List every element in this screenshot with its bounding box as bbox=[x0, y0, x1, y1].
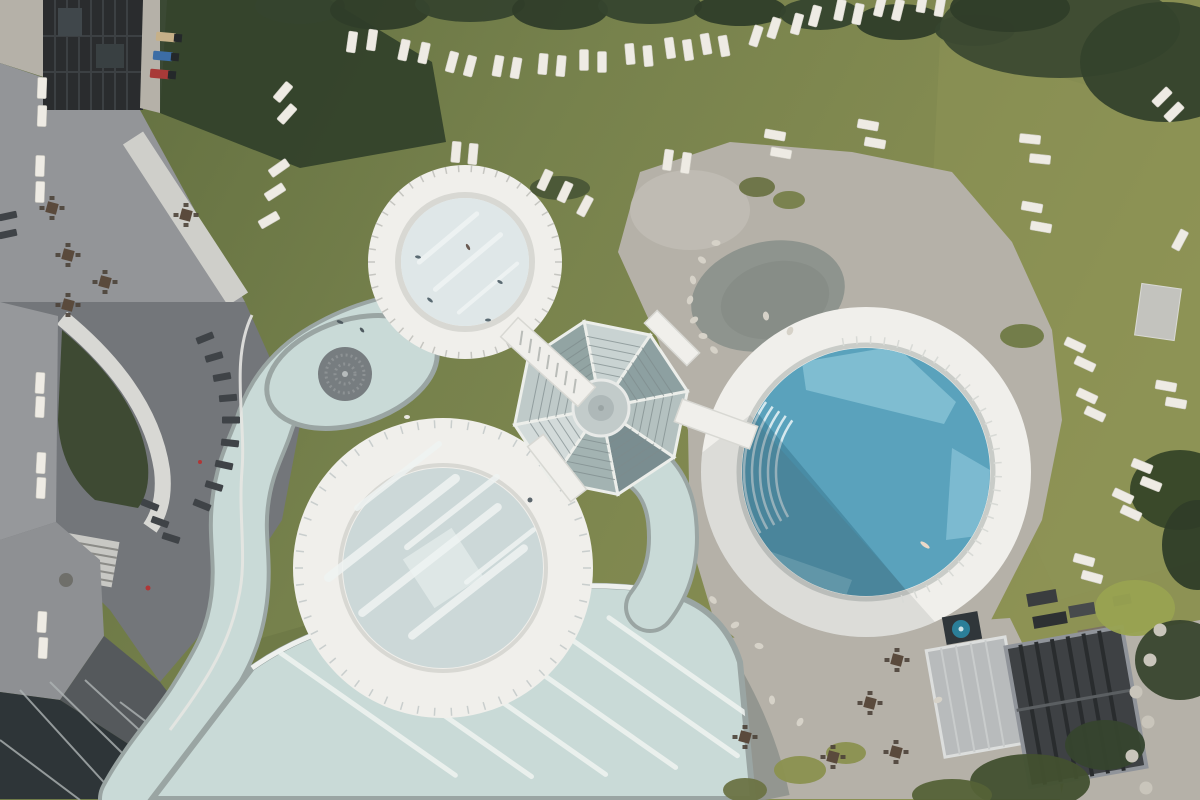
sun-lounger bbox=[451, 141, 462, 163]
sun-lounger bbox=[35, 372, 45, 393]
railing-tick bbox=[582, 551, 590, 552]
chair bbox=[184, 203, 189, 207]
chair bbox=[40, 206, 45, 210]
stepping-stone bbox=[1140, 782, 1153, 795]
chair bbox=[76, 303, 81, 307]
chair bbox=[895, 648, 900, 652]
stepping-stone bbox=[1130, 686, 1143, 699]
chair bbox=[56, 303, 61, 307]
chair bbox=[56, 253, 61, 257]
chair bbox=[894, 740, 899, 744]
bush bbox=[774, 756, 826, 784]
railing-tick bbox=[994, 463, 1002, 464]
bush bbox=[1065, 720, 1145, 770]
railing-tick bbox=[857, 336, 858, 344]
chair bbox=[50, 196, 55, 200]
stepping-stone bbox=[1144, 654, 1157, 667]
dark-lounger bbox=[222, 417, 240, 424]
spa-aerial-photo-svg bbox=[0, 0, 1200, 800]
lounger-footrest bbox=[174, 34, 183, 43]
railing-tick bbox=[296, 584, 304, 585]
stepping-stone bbox=[1154, 624, 1167, 637]
sun-lounger bbox=[468, 143, 479, 165]
sun-lounger bbox=[37, 77, 47, 98]
sun-lounger bbox=[35, 396, 45, 417]
person bbox=[485, 319, 491, 322]
person bbox=[146, 586, 151, 591]
chair bbox=[858, 701, 863, 705]
chair bbox=[184, 223, 189, 227]
colored-lounger bbox=[153, 51, 174, 62]
sun-lounger bbox=[643, 45, 654, 67]
gravel-highlight bbox=[630, 170, 750, 250]
chair bbox=[174, 213, 179, 217]
stepping-stone bbox=[1142, 716, 1155, 729]
sun-lounger bbox=[556, 55, 567, 77]
chair bbox=[194, 213, 199, 217]
railing-tick bbox=[554, 249, 561, 250]
skylight bbox=[58, 8, 82, 36]
chair bbox=[753, 735, 758, 739]
chair bbox=[831, 765, 836, 769]
railing-tick bbox=[369, 274, 376, 275]
sun-lounger bbox=[36, 452, 46, 473]
sun-lounger bbox=[625, 43, 636, 65]
bush bbox=[739, 177, 775, 197]
chair bbox=[868, 711, 873, 715]
sun-lounger bbox=[35, 155, 45, 176]
chair bbox=[831, 745, 836, 749]
chair bbox=[66, 263, 71, 267]
chair bbox=[743, 725, 748, 729]
chair bbox=[113, 280, 118, 284]
railing-tick bbox=[554, 274, 561, 275]
sun-lounger bbox=[1029, 153, 1051, 164]
sun-lounger bbox=[37, 611, 47, 632]
chair bbox=[894, 760, 899, 764]
hot-tub-center bbox=[959, 627, 964, 632]
chair bbox=[868, 691, 873, 695]
lounger-footrest bbox=[171, 53, 180, 62]
chair bbox=[884, 750, 889, 754]
sun-lounger bbox=[1019, 133, 1041, 144]
sun-lounger bbox=[598, 52, 607, 73]
lounger-footrest bbox=[168, 71, 177, 80]
railing-tick bbox=[296, 551, 304, 552]
side-roof-a bbox=[0, 302, 58, 540]
chair bbox=[904, 750, 909, 754]
chair bbox=[50, 216, 55, 220]
colored-lounger bbox=[156, 32, 177, 43]
stepping-stone bbox=[1126, 750, 1139, 763]
railing-tick bbox=[369, 249, 376, 250]
chair bbox=[733, 735, 738, 739]
sun-lounger bbox=[37, 105, 47, 126]
chair bbox=[885, 658, 890, 662]
colored-lounger bbox=[150, 69, 171, 80]
planter bbox=[59, 573, 73, 587]
bush bbox=[773, 191, 805, 209]
chair bbox=[895, 668, 900, 672]
sun-lounger bbox=[38, 637, 48, 658]
person bbox=[528, 498, 533, 503]
sun-lounger bbox=[538, 53, 549, 75]
person bbox=[404, 415, 410, 419]
rock bbox=[712, 240, 721, 246]
chair bbox=[821, 755, 826, 759]
pavilion-hub-center bbox=[598, 405, 604, 411]
small-pool bbox=[368, 165, 562, 359]
person bbox=[198, 460, 202, 464]
chair bbox=[103, 270, 108, 274]
chair bbox=[66, 313, 71, 317]
chair bbox=[66, 293, 71, 297]
chair bbox=[93, 280, 98, 284]
railing-tick bbox=[582, 584, 590, 585]
sun-lounger bbox=[36, 477, 46, 498]
chair bbox=[103, 290, 108, 294]
chair bbox=[66, 243, 71, 247]
bush bbox=[1000, 324, 1044, 348]
skylight bbox=[96, 44, 124, 68]
chair bbox=[743, 745, 748, 749]
lawn-platform bbox=[1135, 283, 1182, 340]
chair bbox=[878, 701, 883, 705]
aerial-photo bbox=[0, 0, 1200, 800]
chair bbox=[76, 253, 81, 257]
chair bbox=[841, 755, 846, 759]
whirlpool-center bbox=[342, 371, 348, 377]
chair bbox=[60, 206, 65, 210]
sun-lounger bbox=[580, 50, 589, 71]
chair bbox=[905, 658, 910, 662]
sun-lounger bbox=[35, 181, 45, 202]
